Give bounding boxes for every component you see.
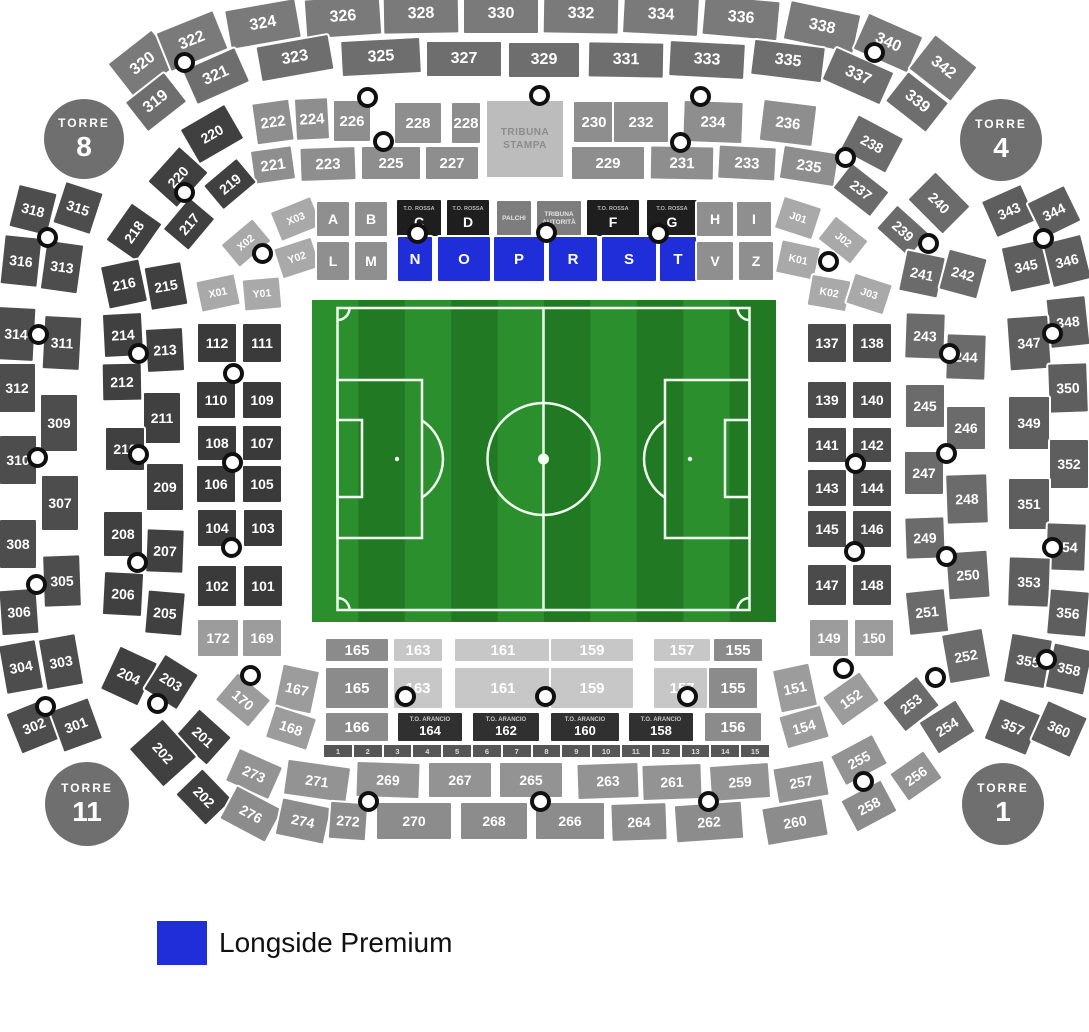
section-163[interactable]: 163 <box>392 637 444 663</box>
gate-marker <box>833 658 854 679</box>
gate-marker <box>1033 228 1054 249</box>
section-165[interactable]: 165 <box>324 666 390 710</box>
gate-marker <box>395 686 416 707</box>
row-marker-6: 6 <box>472 744 502 758</box>
football-pitch <box>312 300 776 622</box>
section-tribuna-stampa[interactable]: TRIBUNASTAMPA <box>485 99 565 179</box>
section-j03[interactable]: J03 <box>844 271 894 316</box>
section-307[interactable]: 307 <box>40 474 80 532</box>
section-331[interactable]: 331 <box>587 40 666 79</box>
section-270[interactable]: 270 <box>375 801 453 841</box>
stadium-map: 3203223243263283303323343363383403423193… <box>0 0 1089 880</box>
section-139[interactable]: 139 <box>806 380 848 420</box>
section-156[interactable]: 156 <box>703 711 763 743</box>
row-marker-8: 8 <box>532 744 562 758</box>
gate-marker <box>690 86 711 107</box>
gate-marker <box>174 182 195 203</box>
row-marker-10: 10 <box>591 744 621 758</box>
section-251[interactable]: 251 <box>904 587 951 637</box>
section-228[interactable]: 228 <box>450 101 482 145</box>
section-315[interactable]: 315 <box>51 180 105 237</box>
section-t-o-arancio-162[interactable]: T.O. ARANCIO162 <box>471 711 541 743</box>
section-107[interactable]: 107 <box>241 424 283 462</box>
gate-marker <box>648 223 669 244</box>
section-138[interactable]: 138 <box>851 322 893 364</box>
section-172[interactable]: 172 <box>196 618 240 658</box>
section-312[interactable]: 312 <box>0 362 37 414</box>
section-353[interactable]: 353 <box>1006 555 1052 609</box>
section-t-o-rossa-f[interactable]: T.O. ROSSAF <box>585 198 641 238</box>
section-265[interactable]: 265 <box>498 761 564 799</box>
row-marker-1: 1 <box>323 744 353 758</box>
section-102[interactable]: 102 <box>196 564 238 608</box>
row-marker-4: 4 <box>412 744 442 758</box>
section-329[interactable]: 329 <box>507 41 581 79</box>
section-235[interactable]: 235 <box>778 144 841 189</box>
section-b[interactable]: B <box>353 200 389 238</box>
gate-marker <box>1042 323 1063 344</box>
section-233[interactable]: 233 <box>716 143 778 182</box>
section-229[interactable]: 229 <box>570 145 646 181</box>
section-109[interactable]: 109 <box>241 380 283 420</box>
section-268[interactable]: 268 <box>459 801 529 841</box>
section-351[interactable]: 351 <box>1007 477 1051 531</box>
section-213[interactable]: 213 <box>144 326 186 374</box>
section-101[interactable]: 101 <box>242 564 284 608</box>
gate-marker <box>835 147 856 168</box>
section-150[interactable]: 150 <box>853 618 895 658</box>
section-325[interactable]: 325 <box>339 36 423 78</box>
section-301[interactable]: 301 <box>47 696 104 754</box>
row-marker-5: 5 <box>442 744 472 758</box>
section-166[interactable]: 166 <box>324 711 390 743</box>
section-147[interactable]: 147 <box>806 563 848 607</box>
section-165[interactable]: 165 <box>324 637 390 663</box>
section-256[interactable]: 256 <box>888 749 945 804</box>
section-350[interactable]: 350 <box>1046 361 1089 414</box>
section-159[interactable]: 159 <box>549 666 635 710</box>
section-222[interactable]: 222 <box>250 97 296 146</box>
section-332[interactable]: 332 <box>542 0 621 36</box>
gate-marker <box>918 233 939 254</box>
gate-marker <box>252 243 273 264</box>
torre-8: TORRE8 <box>44 99 124 179</box>
row-marker-11: 11 <box>621 744 651 758</box>
section-143[interactable]: 143 <box>806 468 848 508</box>
section-111[interactable]: 111 <box>241 322 283 364</box>
gate-marker <box>128 343 149 364</box>
section-327[interactable]: 327 <box>425 40 503 78</box>
gate-marker <box>939 343 960 364</box>
gate-marker <box>373 131 394 152</box>
section-p[interactable]: P <box>492 235 546 283</box>
gate-marker <box>936 443 957 464</box>
section-169[interactable]: 169 <box>241 618 283 658</box>
torre-4: TORRE4 <box>960 99 1042 181</box>
gate-marker <box>147 693 168 714</box>
section-149[interactable]: 149 <box>808 618 850 658</box>
section-a[interactable]: A <box>315 200 351 238</box>
section-i[interactable]: I <box>735 200 773 238</box>
section-263[interactable]: 263 <box>575 761 640 801</box>
row-marker-14: 14 <box>710 744 740 758</box>
gate-marker <box>127 552 148 573</box>
section-208[interactable]: 208 <box>102 510 144 558</box>
section-157[interactable]: 157 <box>652 637 712 663</box>
section-t-o-arancio-164[interactable]: T.O. ARANCIO164 <box>396 711 464 743</box>
gate-marker <box>698 791 719 812</box>
section-228[interactable]: 228 <box>393 101 443 145</box>
section-241[interactable]: 241 <box>897 248 947 300</box>
gate-marker <box>26 574 47 595</box>
gate-marker <box>844 541 865 562</box>
section-145[interactable]: 145 <box>806 509 848 549</box>
section-t-o-arancio-160[interactable]: T.O. ARANCIO160 <box>549 711 621 743</box>
row-marker-7: 7 <box>502 744 532 758</box>
gate-marker <box>221 537 242 558</box>
section-335[interactable]: 335 <box>749 38 827 85</box>
section-248[interactable]: 248 <box>944 472 990 526</box>
section-311[interactable]: 311 <box>41 314 84 372</box>
gate-marker <box>925 667 946 688</box>
section-360[interactable]: 360 <box>1029 699 1089 760</box>
section-j01[interactable]: J01 <box>772 194 823 241</box>
gate-marker <box>358 791 379 812</box>
section-236[interactable]: 236 <box>758 98 819 148</box>
gate-marker <box>529 85 550 106</box>
gate-marker <box>174 52 195 73</box>
gate-marker <box>536 222 557 243</box>
section-110[interactable]: 110 <box>195 380 237 420</box>
gate-marker <box>1036 649 1057 670</box>
gate-marker <box>853 771 874 792</box>
section-245[interactable]: 245 <box>904 383 946 429</box>
row-marker-9: 9 <box>561 744 591 758</box>
section-144[interactable]: 144 <box>851 468 893 508</box>
section-352[interactable]: 352 <box>1048 438 1089 490</box>
gate-marker <box>677 686 698 707</box>
section-103[interactable]: 103 <box>242 508 284 548</box>
gate-marker <box>936 546 957 567</box>
section-305[interactable]: 305 <box>41 553 83 608</box>
gate-marker <box>128 444 149 465</box>
gate-marker <box>357 87 378 108</box>
section-137[interactable]: 137 <box>806 322 848 364</box>
legend-label: Longside Premium <box>219 927 452 959</box>
section-218[interactable]: 218 <box>104 201 164 263</box>
gate-marker <box>864 42 885 63</box>
row-marker-12: 12 <box>651 744 681 758</box>
section-224[interactable]: 224 <box>293 96 331 142</box>
section-308[interactable]: 308 <box>0 518 38 570</box>
section-h[interactable]: H <box>695 200 735 238</box>
gate-marker <box>845 453 866 474</box>
section-356[interactable]: 356 <box>1045 587 1089 638</box>
gate-marker <box>223 363 244 384</box>
section-112[interactable]: 112 <box>196 322 238 364</box>
section-232[interactable]: 232 <box>612 100 670 144</box>
section-y01[interactable]: Y01 <box>241 275 284 312</box>
row-marker-3: 3 <box>383 744 413 758</box>
section-215[interactable]: 215 <box>142 260 189 312</box>
section-252[interactable]: 252 <box>940 627 992 686</box>
gate-marker <box>530 791 551 812</box>
row-marker-15: 15 <box>740 744 770 758</box>
section-274[interactable]: 274 <box>273 796 332 846</box>
section-k02[interactable]: K02 <box>805 273 852 314</box>
gate-marker <box>670 132 691 153</box>
gate-marker <box>407 223 428 244</box>
section-148[interactable]: 148 <box>851 563 893 607</box>
section-palchi[interactable]: PALCHI <box>495 199 533 239</box>
gate-marker <box>818 251 839 272</box>
section-261[interactable]: 261 <box>640 762 703 802</box>
section-212[interactable]: 212 <box>101 362 144 403</box>
gate-marker <box>35 696 56 717</box>
section-159[interactable]: 159 <box>549 637 635 663</box>
section-333[interactable]: 333 <box>667 39 747 81</box>
section-349[interactable]: 349 <box>1007 395 1051 451</box>
section-330[interactable]: 330 <box>462 0 540 35</box>
section-211[interactable]: 211 <box>142 391 182 445</box>
section-209[interactable]: 209 <box>145 462 185 512</box>
row-marker-2: 2 <box>353 744 383 758</box>
section-242[interactable]: 242 <box>937 247 989 300</box>
section-141[interactable]: 141 <box>806 426 848 464</box>
section-l[interactable]: L <box>315 240 351 282</box>
section-334[interactable]: 334 <box>621 0 701 38</box>
section-328[interactable]: 328 <box>382 0 461 36</box>
section-230[interactable]: 230 <box>572 100 616 144</box>
section-234[interactable]: 234 <box>681 99 744 145</box>
section-309[interactable]: 309 <box>39 393 79 453</box>
section-140[interactable]: 140 <box>851 380 893 420</box>
section-225[interactable]: 225 <box>360 145 422 181</box>
gate-marker <box>240 665 261 686</box>
torre-11: TORRE11 <box>45 762 129 846</box>
section-155[interactable]: 155 <box>712 637 764 663</box>
gate-marker <box>222 452 243 473</box>
section-105[interactable]: 105 <box>241 464 283 504</box>
section-267[interactable]: 267 <box>427 761 493 799</box>
section-217[interactable]: 217 <box>161 196 217 253</box>
section-z[interactable]: Z <box>737 240 775 282</box>
section-o[interactable]: O <box>436 235 492 283</box>
section-264[interactable]: 264 <box>609 801 668 843</box>
section-227[interactable]: 227 <box>424 145 480 181</box>
section-216[interactable]: 216 <box>99 257 150 311</box>
section-t-o-arancio-158[interactable]: T.O. ARANCIO158 <box>627 711 695 743</box>
legend-swatch-longside-premium <box>157 921 207 965</box>
section-207[interactable]: 207 <box>144 527 186 574</box>
section-t-o-rossa-d[interactable]: T.O. ROSSAD <box>445 198 491 238</box>
row-marker-13: 13 <box>681 744 711 758</box>
section-r[interactable]: R <box>547 235 599 283</box>
section-336[interactable]: 336 <box>700 0 781 42</box>
gate-marker <box>37 227 58 248</box>
section-152[interactable]: 152 <box>820 670 881 729</box>
section-m[interactable]: M <box>353 240 389 282</box>
section-155[interactable]: 155 <box>707 666 759 710</box>
gate-marker <box>535 686 556 707</box>
legend: Longside Premium <box>157 921 452 965</box>
stadium-seat-map-page: 3203223243263283303323343363383403423193… <box>0 0 1089 1032</box>
section-303[interactable]: 303 <box>37 632 86 692</box>
section-223[interactable]: 223 <box>298 145 357 183</box>
gate-marker <box>27 447 48 468</box>
torre-1: TORRE1 <box>962 763 1044 845</box>
section-206[interactable]: 206 <box>101 570 145 618</box>
gate-marker <box>1042 537 1063 558</box>
section-260[interactable]: 260 <box>760 797 830 848</box>
section-v[interactable]: V <box>695 240 735 282</box>
section-s[interactable]: S <box>600 235 658 283</box>
section-x01[interactable]: X01 <box>194 272 242 314</box>
section-205[interactable]: 205 <box>143 588 187 637</box>
gate-marker <box>28 324 49 345</box>
section-161[interactable]: 161 <box>453 637 553 663</box>
